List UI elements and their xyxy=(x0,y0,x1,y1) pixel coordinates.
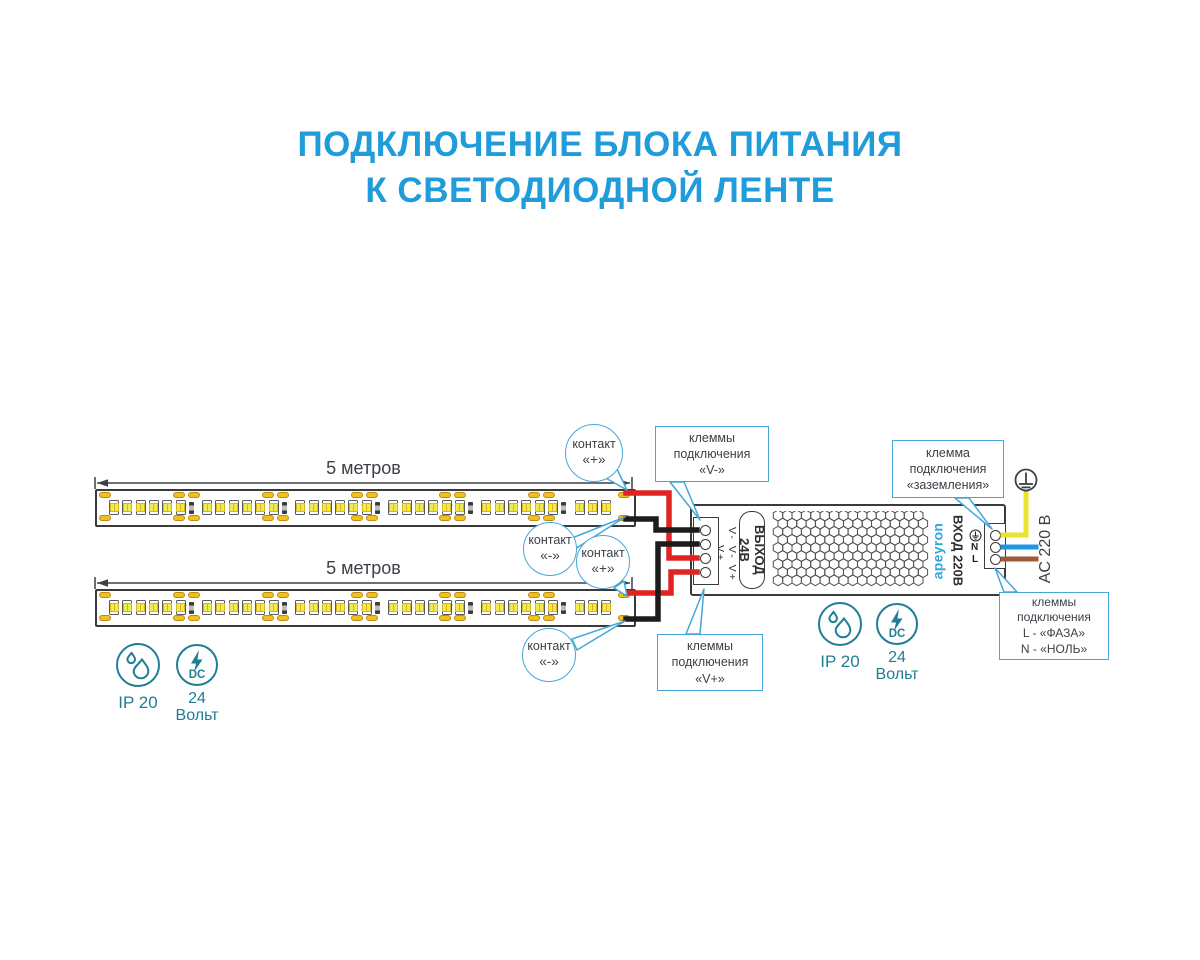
resistor-chip xyxy=(375,602,380,614)
wire-red-strip1-vplus xyxy=(626,493,697,558)
led-strip-1: ✂✂✂✂✂ xyxy=(95,489,636,527)
led-chip xyxy=(588,600,598,615)
earth-ground-icon xyxy=(969,529,982,542)
psu-input-label: ВХОД 220В xyxy=(948,513,968,589)
led-chip xyxy=(348,500,358,515)
solder-pad xyxy=(366,615,378,621)
led-chip xyxy=(388,600,398,615)
solder-pad xyxy=(99,592,111,598)
led-chip xyxy=(295,600,305,615)
strip1-length-label: 5 метров xyxy=(95,458,632,479)
led-chip xyxy=(415,600,425,615)
solder-pad xyxy=(454,615,466,621)
led-chip xyxy=(362,500,372,515)
psu-dc-terminal-labels: V- V- V+ V+ xyxy=(719,519,733,589)
led-chip xyxy=(176,600,186,615)
led-chip xyxy=(535,500,545,515)
led-chip xyxy=(495,500,505,515)
terminal-n-label: N xyxy=(971,542,978,553)
callout-contact-plus-bottom: контакт «+» xyxy=(576,535,630,589)
psu-output-label-plate: ВЫХОД 24В xyxy=(739,511,765,589)
led-chip xyxy=(348,600,358,615)
led-chip xyxy=(136,600,146,615)
resistor-chip xyxy=(468,602,473,614)
led-chip xyxy=(402,600,412,615)
wire-red-strip2-vplus xyxy=(626,572,697,593)
led-chip xyxy=(109,500,119,515)
resistor-chip xyxy=(561,502,566,514)
led-chip xyxy=(601,500,611,515)
led-chip xyxy=(122,500,132,515)
resistor-chip xyxy=(282,602,287,614)
led-chip xyxy=(455,600,465,615)
solder-pad xyxy=(439,515,451,521)
solder-pad xyxy=(366,492,378,498)
wire-black-strip2-vminus xyxy=(626,544,697,619)
voltage-unit-label: Вольт xyxy=(162,707,232,725)
solder-pad xyxy=(454,492,466,498)
water-drops-icon xyxy=(817,601,863,647)
solder-pad xyxy=(528,515,540,521)
solder-pad xyxy=(188,615,200,621)
led-chip xyxy=(481,600,491,615)
callout-v-plus: клеммы подключения «V+» xyxy=(657,634,763,691)
solder-pad xyxy=(262,492,274,498)
solder-pad xyxy=(277,515,289,521)
led-chip xyxy=(229,500,239,515)
solder-pad xyxy=(173,492,185,498)
svg-text:DC: DC xyxy=(189,669,206,681)
led-chip xyxy=(309,500,319,515)
led-chip xyxy=(176,500,186,515)
led-chip xyxy=(362,600,372,615)
solder-pad xyxy=(366,515,378,521)
led-chip xyxy=(322,600,332,615)
led-chip xyxy=(202,600,212,615)
solder-pad xyxy=(439,592,451,598)
brand-logo: apeyron xyxy=(928,513,946,589)
led-chip xyxy=(149,600,159,615)
led-chip xyxy=(442,500,452,515)
ac-supply-label: AC 220 В xyxy=(1037,515,1055,583)
dc-terminal-block xyxy=(693,517,719,585)
led-chip xyxy=(521,600,531,615)
callout-mains: клеммы подключения L - «ФАЗА» N - «НОЛЬ» xyxy=(999,592,1109,660)
wire-black-strip1-vminus xyxy=(626,519,697,530)
resistor-chip xyxy=(282,502,287,514)
solder-pad xyxy=(99,515,111,521)
led-chip xyxy=(575,600,585,615)
svg-text:DC: DC xyxy=(889,628,906,640)
led-chip xyxy=(588,500,598,515)
led-chip xyxy=(215,500,225,515)
led-chip xyxy=(535,600,545,615)
led-chip xyxy=(402,500,412,515)
callout-contact-minus-top: контакт «-» xyxy=(523,522,577,576)
led-chip xyxy=(269,600,279,615)
resistor-chip xyxy=(561,602,566,614)
solder-pad xyxy=(618,492,630,498)
solder-pad xyxy=(454,592,466,598)
terminal-l xyxy=(990,554,1001,565)
solder-pad xyxy=(528,615,540,621)
voltage-unit-label: Вольт xyxy=(862,666,932,684)
terminal-l-label: L xyxy=(972,554,978,565)
led-chip xyxy=(388,500,398,515)
solder-pad xyxy=(543,615,555,621)
led-chip xyxy=(335,600,345,615)
led-chip xyxy=(149,500,159,515)
solder-pad xyxy=(262,615,274,621)
solder-pad xyxy=(351,492,363,498)
led-chip xyxy=(255,500,265,515)
solder-pad xyxy=(277,615,289,621)
led-chip xyxy=(548,500,558,515)
terminal-v-minus-1 xyxy=(700,525,711,536)
solder-pad xyxy=(188,515,200,521)
led-chip xyxy=(428,500,438,515)
led-chip xyxy=(295,500,305,515)
solder-pad xyxy=(262,515,274,521)
solder-pad xyxy=(173,515,185,521)
led-chip xyxy=(229,600,239,615)
solder-pad xyxy=(351,592,363,598)
terminal-v-plus-2 xyxy=(700,567,711,578)
solder-pad xyxy=(99,492,111,498)
led-strip-2: ✂✂✂✂✂ xyxy=(95,589,636,627)
voltage-value-label: 24 xyxy=(872,649,922,667)
solder-pad xyxy=(454,515,466,521)
terminal-v-plus-1 xyxy=(700,553,711,564)
wire-yellow-ground xyxy=(1003,492,1026,535)
terminal-n xyxy=(990,542,1001,553)
solder-pad xyxy=(173,615,185,621)
solder-pad xyxy=(439,615,451,621)
lightning-bolt-icon: DC xyxy=(175,643,219,687)
ac-terminal-block xyxy=(984,523,1006,569)
led-chip xyxy=(521,500,531,515)
led-chip xyxy=(309,600,319,615)
led-chip xyxy=(442,600,452,615)
solder-pad xyxy=(439,492,451,498)
solder-pad xyxy=(173,592,185,598)
solder-pad xyxy=(618,615,630,621)
solder-pad xyxy=(528,592,540,598)
solder-pad xyxy=(351,515,363,521)
solder-pad xyxy=(99,615,111,621)
resistor-chip xyxy=(375,502,380,514)
solder-pad xyxy=(277,492,289,498)
voltage-value-label: 24 xyxy=(172,690,222,708)
solder-pad xyxy=(543,492,555,498)
led-chip xyxy=(601,600,611,615)
lightning-bolt-icon: DC xyxy=(875,602,919,646)
resistor-chip xyxy=(468,502,473,514)
callout-contact-plus-top: контакт «+» xyxy=(565,424,623,482)
led-chip xyxy=(255,600,265,615)
solder-pad xyxy=(262,592,274,598)
led-chip xyxy=(109,600,119,615)
solder-pad xyxy=(188,492,200,498)
solder-pad xyxy=(366,592,378,598)
led-chip xyxy=(242,600,252,615)
terminal-v-minus-2 xyxy=(700,539,711,550)
solder-pad xyxy=(543,592,555,598)
callout-contact-minus-bottom: контакт «-» xyxy=(522,628,576,682)
resistor-chip xyxy=(189,502,194,514)
led-chip xyxy=(322,500,332,515)
psu-vent-honeycomb xyxy=(772,511,934,589)
led-chip xyxy=(508,600,518,615)
terminal-ground xyxy=(990,530,1001,541)
led-chip xyxy=(269,500,279,515)
led-chip xyxy=(122,600,132,615)
psu-output-label: ВЫХОД 24В xyxy=(737,512,767,588)
led-chip xyxy=(415,500,425,515)
page-title: ПОДКЛЮЧЕНИЕ БЛОКА ПИТАНИЯ К СВЕТОДИОДНОЙ… xyxy=(150,122,1050,213)
led-chip xyxy=(162,600,172,615)
led-chip xyxy=(136,500,146,515)
solder-pad xyxy=(528,492,540,498)
callout-v-minus: клеммы подключения «V-» xyxy=(655,426,769,482)
page-title-line1: ПОДКЛЮЧЕНИЕ БЛОКА ПИТАНИЯ xyxy=(150,122,1050,168)
water-drops-icon xyxy=(115,642,161,688)
led-chip xyxy=(242,500,252,515)
wiring-diagram: ПОДКЛЮЧЕНИЕ БЛОКА ПИТАНИЯ К СВЕТОДИОДНОЙ… xyxy=(0,0,1200,960)
callout-ground: клемма подключения «заземления» xyxy=(892,440,1004,498)
solder-pad xyxy=(618,515,630,521)
solder-pad xyxy=(618,592,630,598)
solder-pad xyxy=(188,592,200,598)
resistor-chip xyxy=(189,602,194,614)
led-chip xyxy=(335,500,345,515)
led-chip xyxy=(508,500,518,515)
earth-ground-symbol xyxy=(1016,470,1037,491)
solder-pad xyxy=(351,615,363,621)
led-chip xyxy=(481,500,491,515)
led-chip xyxy=(548,600,558,615)
led-chip xyxy=(202,500,212,515)
led-chip xyxy=(162,500,172,515)
power-supply-unit: ВЫХОД 24В V- V- V+ V+ apeyron ВХОД 220В xyxy=(690,504,1006,596)
page-title-line2: К СВЕТОДИОДНОЙ ЛЕНТЕ xyxy=(150,168,1050,214)
led-chip xyxy=(215,600,225,615)
led-chip xyxy=(495,600,505,615)
led-chip xyxy=(428,600,438,615)
led-chip xyxy=(575,500,585,515)
led-chip xyxy=(455,500,465,515)
solder-pad xyxy=(277,592,289,598)
solder-pad xyxy=(543,515,555,521)
